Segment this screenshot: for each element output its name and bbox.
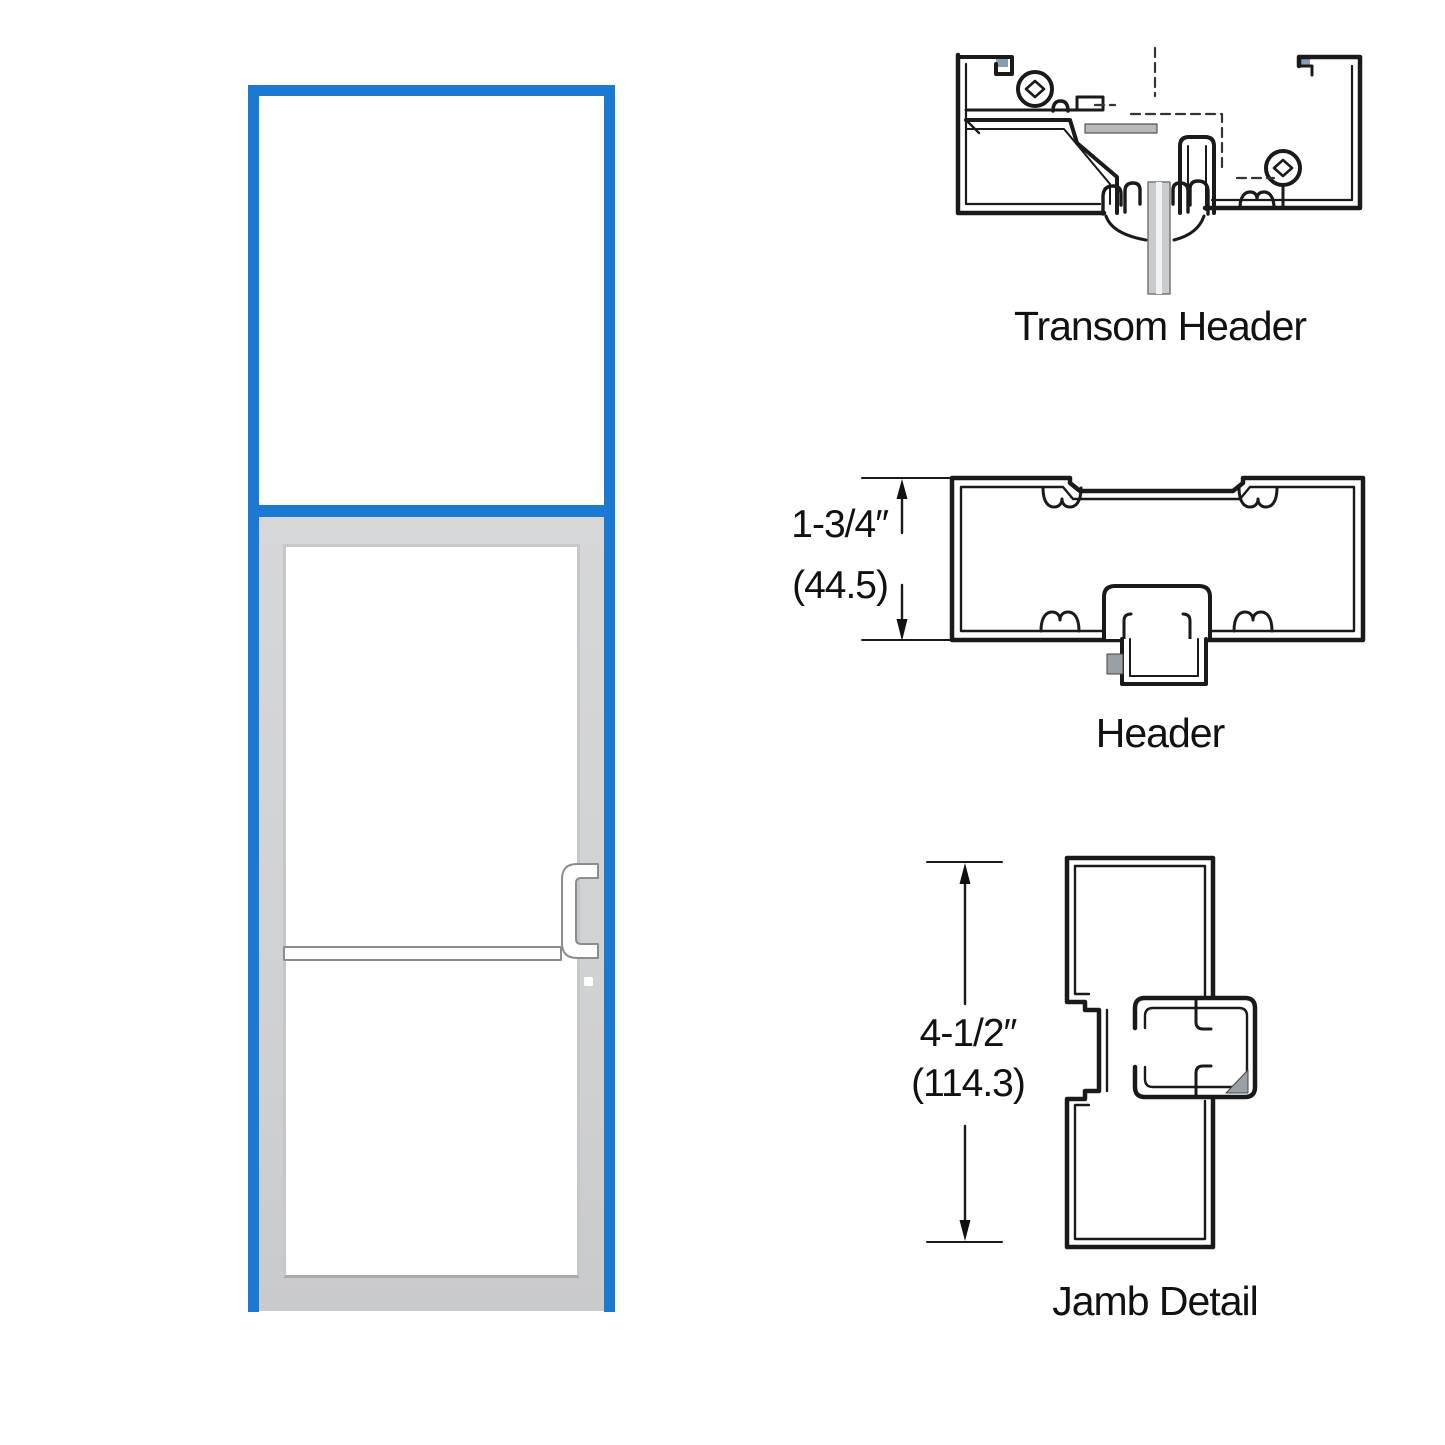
- pull-handle: [562, 864, 598, 958]
- lock-cylinder-dot: [584, 977, 593, 986]
- header-door-stop-clip: [1104, 586, 1210, 684]
- jamb-dimension-imperial: 4-1/2″: [888, 1012, 1048, 1056]
- glass-panel: [1148, 182, 1170, 294]
- roller-fastener-icon-left: [1018, 72, 1068, 111]
- transom-sill-step: [1077, 97, 1157, 133]
- header-figure: [855, 455, 1395, 705]
- header-label: Header: [1010, 710, 1310, 757]
- jamb-dimension-metric: (114.3): [880, 1062, 1056, 1106]
- dashed-reference-lines: [1095, 48, 1274, 178]
- header-dimension-metric: (44.5): [756, 564, 888, 608]
- push-bar: [284, 947, 561, 960]
- jamb-detail-label: Jamb Detail: [1005, 1278, 1305, 1325]
- door-hardware: [248, 85, 615, 1320]
- transom-header-label: Transom Header: [960, 303, 1360, 350]
- door-with-transom-figure: [0, 0, 700, 1445]
- header-dimension-imperial: 1-3/4″: [756, 503, 888, 547]
- jamb-door-stile: [1135, 998, 1255, 1097]
- product-diagram-page: Transom Header: [0, 0, 1445, 1445]
- transom-header-figure: [920, 42, 1395, 304]
